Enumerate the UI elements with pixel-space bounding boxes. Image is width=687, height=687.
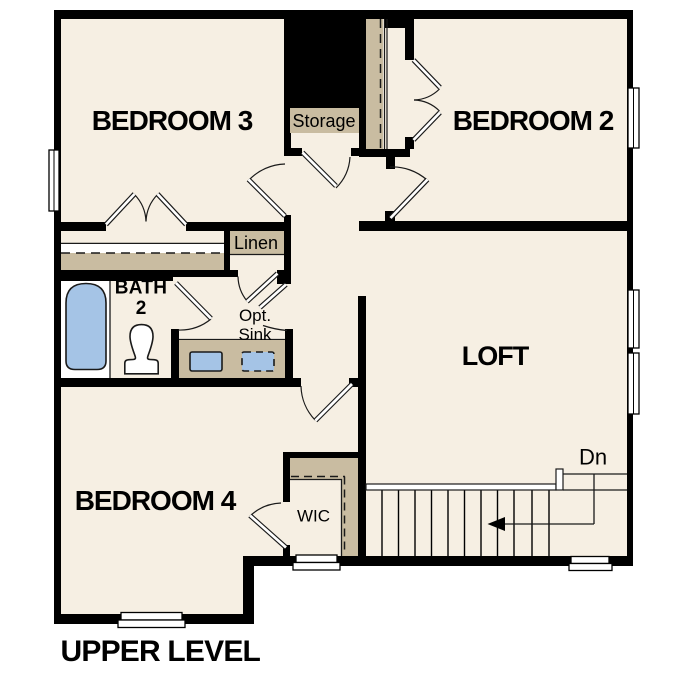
svg-text:BATH: BATH	[115, 278, 168, 299]
svg-text:BEDROOM 3: BEDROOM 3	[92, 105, 253, 136]
svg-text:BEDROOM 2: BEDROOM 2	[453, 105, 614, 136]
svg-text:Linen: Linen	[234, 233, 278, 253]
svg-text:Storage: Storage	[292, 111, 355, 131]
svg-text:Opt.: Opt.	[239, 306, 271, 325]
svg-text:LOFT: LOFT	[462, 341, 530, 371]
svg-text:Sink: Sink	[238, 325, 272, 344]
svg-text:Dn: Dn	[579, 445, 607, 470]
svg-text:UPPER LEVEL: UPPER LEVEL	[61, 635, 261, 668]
svg-text:WIC: WIC	[297, 507, 330, 526]
svg-text:2: 2	[136, 298, 147, 319]
svg-text:BEDROOM 4: BEDROOM 4	[75, 485, 237, 516]
